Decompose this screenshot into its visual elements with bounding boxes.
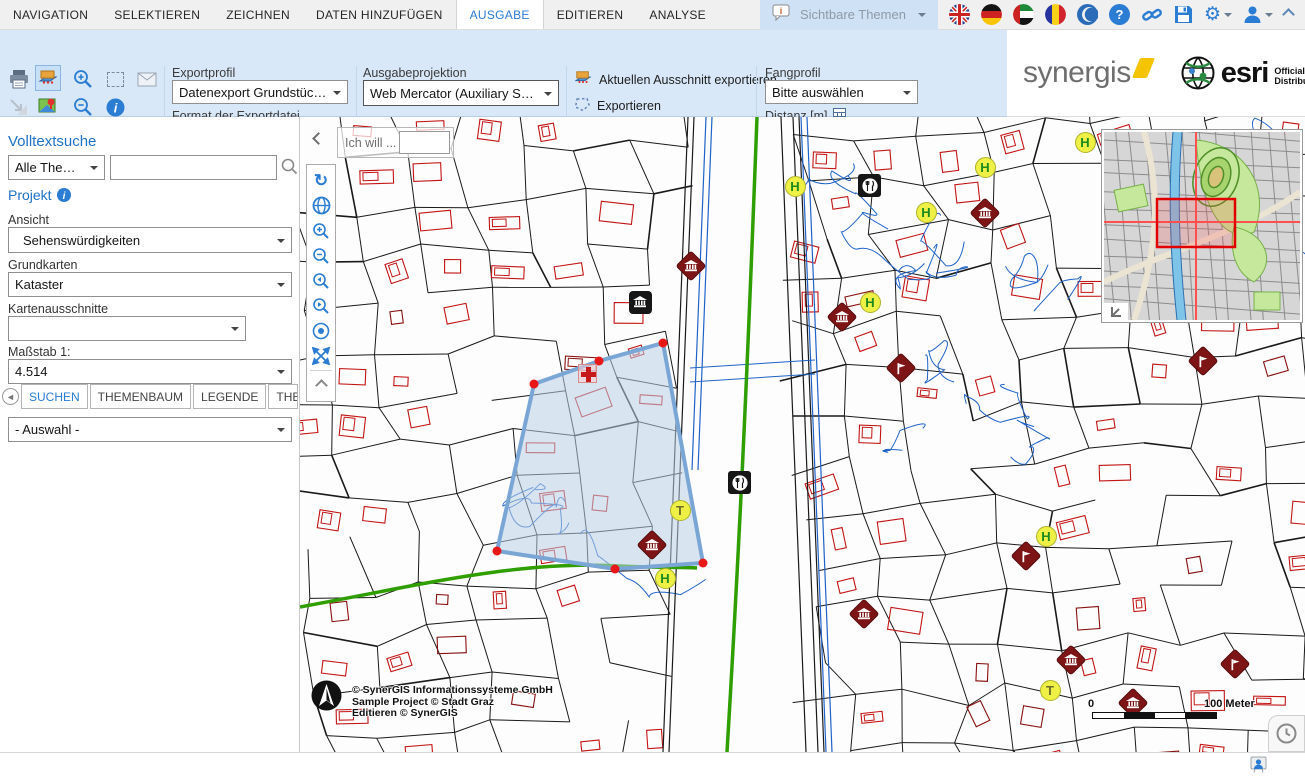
uk-flag-icon[interactable]: [949, 4, 970, 25]
overview-collapse-icon[interactable]: [1104, 303, 1128, 320]
svg-text:i: i: [62, 191, 65, 202]
svg-text:i: i: [780, 6, 783, 16]
time-slider-button[interactable]: [1268, 715, 1305, 752]
visible-themes-dropdown[interactable]: i Sichtbare Themen: [760, 0, 938, 30]
projektion-select[interactable]: Web Mercator (Auxiliary Sp...: [363, 80, 559, 106]
scale-start-label: 0: [1088, 698, 1094, 710]
tab-theme[interactable]: THEME: [268, 384, 298, 409]
restaurant-marker[interactable]: [728, 471, 751, 494]
menu-item-ausgabe[interactable]: AUSGABE: [456, 0, 544, 29]
tab-themenbaum[interactable]: THEMENBAUM: [90, 384, 191, 409]
zoom-in-tool[interactable]: [70, 66, 96, 92]
exportprofil-label: Exportprofil: [172, 66, 235, 80]
massstab-select[interactable]: 4.514: [8, 359, 292, 384]
fangprofil-label: Fangprofil: [765, 66, 821, 80]
chevron-down-icon: [544, 92, 552, 100]
sidebar-tab-bar: ◄ SUCHENTHEMENBAUMLEGENDETHEME ► ▼: [0, 383, 300, 410]
menu-item-daten-hinzufügen[interactable]: DATEN HINZUFÜGEN: [303, 0, 456, 29]
export-extent-icon: [574, 70, 592, 89]
polygon-vertex-handle[interactable]: [659, 339, 668, 348]
overview-map[interactable]: [1102, 130, 1302, 322]
projekt-row: Projekt i: [8, 187, 71, 203]
zoom-out-icon[interactable]: [308, 243, 334, 268]
kartenausschnitte-label: Kartenausschnitte: [8, 302, 108, 316]
overview-map-graphics: [1104, 132, 1300, 320]
left-sidebar: Volltextsuche Alle Themen Projekt i Ansi…: [0, 117, 300, 752]
synergis-logo: synergis: [1023, 56, 1151, 90]
menu-item-analyse[interactable]: ANALYSE: [636, 0, 719, 29]
ansicht-select[interactable]: Sehenswürdigkeiten: [8, 227, 292, 253]
zoom-next-icon[interactable]: [308, 293, 334, 318]
info-bubble-icon: i: [772, 4, 791, 26]
chevron-down-icon: [277, 370, 285, 378]
top-menu-bar: NAVIGATIONSELEKTIERENZEICHNENDATEN HINZU…: [0, 0, 1305, 30]
overview-extent-rectangle[interactable]: [1157, 199, 1235, 247]
logo-area: synergis esri OfficialDistributor: [1007, 30, 1305, 117]
export-polygon-icon: [574, 97, 590, 115]
search-icon[interactable]: [281, 158, 298, 180]
scale-bar-segments: [1092, 712, 1217, 719]
globe-icon[interactable]: [308, 193, 334, 218]
chevron-down-icon: [333, 91, 341, 99]
ich-will-input[interactable]: [399, 131, 450, 154]
bus-stop-marker[interactable]: H: [860, 292, 881, 313]
ich-will-label: Ich will ...: [345, 136, 396, 150]
projektion-label: Ausgabeprojektion: [363, 66, 467, 80]
menu-item-zeichnen[interactable]: ZEICHNEN: [213, 0, 303, 29]
bus-stop-marker[interactable]: H: [655, 568, 676, 589]
volltextsuche-heading: Volltextsuche: [8, 133, 96, 150]
print-button[interactable]: [6, 66, 32, 92]
search-themes-select[interactable]: Alle Themen: [8, 155, 105, 180]
fulltext-search-input[interactable]: [110, 155, 277, 180]
link-icon[interactable]: [1141, 5, 1163, 25]
sight-flag-marker[interactable]: [1192, 350, 1214, 372]
main-menu: NAVIGATIONSELEKTIERENZEICHNENDATEN HINZU…: [0, 0, 719, 29]
museum-marker[interactable]: [974, 202, 996, 224]
museum-marker[interactable]: [1122, 692, 1144, 714]
grundkarten-label: Grundkarten: [8, 258, 77, 272]
action-aktuellen-ausschnitt-exportieren[interactable]: Aktuellen Ausschnitt exportieren: [574, 70, 777, 89]
chevron-down-icon: [231, 327, 239, 335]
kartenausschnitte-select[interactable]: [8, 316, 246, 341]
session-user-icon[interactable]: [1250, 756, 1267, 776]
romania-flag-icon[interactable]: [1045, 4, 1066, 25]
selection-polygon[interactable]: [497, 343, 703, 569]
restaurant-marker[interactable]: [858, 174, 881, 197]
polygon-vertex-handle[interactable]: [530, 380, 539, 389]
tabs-scroll-left-button[interactable]: ◄: [2, 388, 19, 405]
toolbar-divider: [310, 370, 332, 371]
bus-stop-marker[interactable]: H: [916, 202, 937, 223]
museum-marker[interactable]: [680, 255, 702, 277]
chevron-down-icon: [277, 239, 285, 247]
export-view-tool[interactable]: [35, 65, 61, 91]
auswahl-select[interactable]: - Auswahl -: [8, 417, 292, 442]
map-canvas[interactable]: HHHHHHHTT Ich will ... ↻: [300, 117, 1305, 752]
museum-marker[interactable]: [641, 534, 663, 556]
visible-themes-label: Sichtbare Themen: [800, 7, 906, 22]
full-extent-icon[interactable]: [308, 343, 334, 368]
sight-flag-marker[interactable]: [890, 357, 912, 379]
clock-icon: [1276, 723, 1297, 744]
menu-item-selektieren[interactable]: SELEKTIEREN: [101, 0, 213, 29]
polygon-vertex-handle[interactable]: [699, 559, 708, 568]
user-icon[interactable]: [1243, 5, 1273, 24]
chevron-down-icon: [1265, 13, 1273, 21]
tram-stop-marker[interactable]: T: [1040, 680, 1061, 701]
crescent-icon[interactable]: [1077, 4, 1098, 25]
menu-item-navigation[interactable]: NAVIGATION: [0, 0, 101, 29]
tab-suchen[interactable]: SUCHEN: [21, 384, 88, 409]
center-map-icon[interactable]: [308, 318, 334, 343]
projekt-label: Projekt: [8, 187, 52, 203]
esri-globe-icon: [1181, 56, 1215, 90]
zoom-previous-icon[interactable]: [308, 268, 334, 293]
sight-flag-marker[interactable]: [1015, 545, 1037, 567]
map-toolbar: ↻: [306, 164, 336, 402]
museum-marker[interactable]: [831, 306, 853, 328]
scale-end-label: 100 Meter: [1204, 698, 1255, 710]
bus-stop-marker[interactable]: H: [785, 176, 806, 197]
fangprofil-select[interactable]: Bitte auswählen: [765, 80, 918, 104]
menu-item-editieren[interactable]: EDITIEREN: [544, 0, 637, 29]
info-icon[interactable]: i: [57, 188, 71, 202]
topbar-right: i Sichtbare Themen ?: [760, 0, 1305, 29]
collapse-toolbar-icon[interactable]: [1284, 10, 1293, 19]
svg-text:i: i: [113, 100, 117, 115]
chevron-down-icon: [277, 428, 285, 436]
grundkarten-select[interactable]: Kataster: [8, 272, 292, 297]
tram-stop-marker[interactable]: T: [670, 500, 691, 521]
ansicht-label: Ansicht: [8, 213, 49, 227]
save-icon[interactable]: [1174, 5, 1193, 24]
mail-tool[interactable]: [134, 66, 160, 92]
settings-gear-icon[interactable]: ⚙: [1204, 3, 1232, 26]
uae-flag-icon[interactable]: [1013, 4, 1034, 25]
bus-stop-marker[interactable]: H: [1036, 526, 1057, 547]
application-window: NAVIGATIONSELEKTIERENZEICHNENDATEN HINZU…: [0, 0, 1305, 776]
chevron-down-icon: [1224, 13, 1232, 21]
north-arrow-icon: [311, 680, 342, 716]
chevron-down-icon: [918, 13, 926, 21]
sight-flag-marker[interactable]: [1224, 653, 1246, 675]
synergis-parallelogram: [1132, 58, 1155, 78]
bus-stop-marker[interactable]: H: [1075, 132, 1096, 153]
chevron-down-icon: [903, 91, 911, 99]
bus-stop-marker[interactable]: H: [975, 157, 996, 178]
exportprofil-select[interactable]: Datenexport Grundstücke (...: [172, 80, 348, 104]
esri-logo: esri OfficialDistributor: [1181, 56, 1305, 90]
ich-will-widget: Ich will ...: [337, 127, 454, 158]
refresh-icon[interactable]: ↻: [308, 168, 334, 193]
ribbon-toolbar: i ✕ Exportprofil Datenexport Grundstücke…: [0, 30, 1007, 117]
museum-building-marker[interactable]: [629, 291, 652, 314]
polygon-vertex-handle[interactable]: [611, 565, 620, 574]
museum-marker[interactable]: [1060, 649, 1082, 671]
svg-text:?: ?: [1115, 7, 1123, 22]
bottom-status-bar: [0, 752, 1305, 776]
map-copyright: © SynerGIS Informationssysteme GmbHSampl…: [352, 685, 553, 720]
collapse-map-toolbar-icon[interactable]: [308, 373, 334, 398]
map-pin-tool[interactable]: [35, 93, 61, 119]
polygon-vertex-handle[interactable]: [493, 547, 502, 556]
tabs: SUCHENTHEMENBAUMLEGENDETHEME: [21, 384, 298, 409]
action-exportieren[interactable]: Exportieren: [574, 97, 661, 115]
zoom-in-icon[interactable]: [308, 218, 334, 243]
massstab-label: Maßstab 1:: [8, 345, 71, 359]
select-rectangle-tool[interactable]: [102, 66, 128, 92]
tab-legende[interactable]: LEGENDE: [193, 384, 266, 409]
museum-marker[interactable]: [853, 603, 875, 625]
help-icon[interactable]: ?: [1109, 4, 1130, 25]
chevron-down-icon: [277, 283, 285, 291]
pharmacy-marker[interactable]: [578, 364, 597, 383]
germany-flag-icon[interactable]: [981, 4, 1002, 25]
chevron-down-icon: [90, 166, 98, 174]
